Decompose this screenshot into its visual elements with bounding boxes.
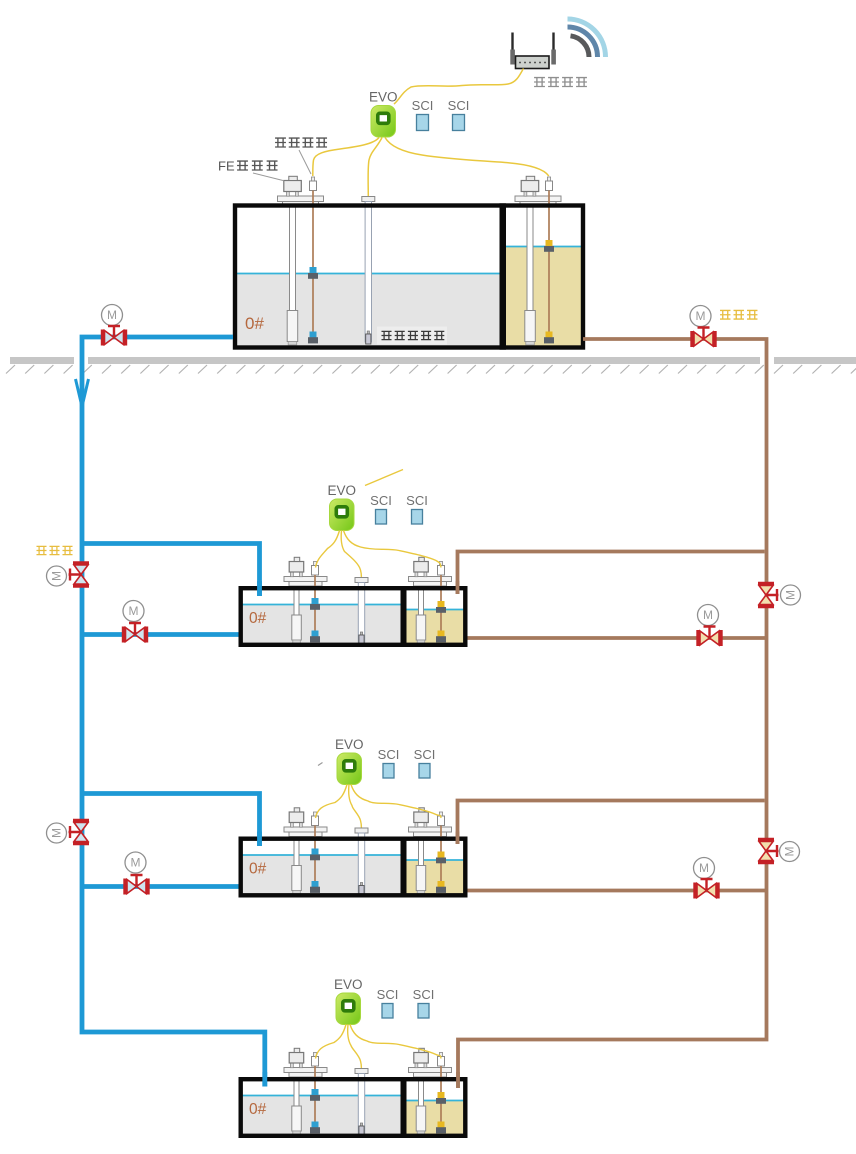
svg-text:SCI: SCI	[448, 98, 470, 113]
svg-text:M: M	[696, 309, 706, 323]
svg-text:M: M	[784, 590, 798, 600]
svg-text:SCI: SCI	[414, 747, 436, 762]
svg-text:SCI: SCI	[413, 987, 435, 1002]
svg-text:SCI: SCI	[370, 493, 392, 508]
svg-text:SCI: SCI	[412, 98, 434, 113]
svg-text:0#: 0#	[249, 610, 267, 627]
svg-text:M: M	[783, 847, 797, 857]
svg-text:M: M	[699, 861, 709, 875]
svg-text:M: M	[129, 604, 139, 618]
svg-text:EVO: EVO	[328, 483, 357, 498]
svg-text:M: M	[703, 608, 713, 622]
svg-text:M: M	[131, 856, 141, 870]
svg-text:EVO: EVO	[335, 737, 364, 752]
svg-text:M: M	[50, 828, 64, 838]
svg-text:0#: 0#	[245, 314, 264, 333]
svg-text:M: M	[50, 571, 64, 581]
svg-text:SCI: SCI	[406, 493, 428, 508]
svg-text:FE: FE	[218, 159, 235, 174]
svg-text:SCI: SCI	[378, 747, 400, 762]
svg-text:SCI: SCI	[377, 987, 399, 1002]
svg-text:0#: 0#	[249, 1101, 267, 1118]
svg-text:EVO: EVO	[334, 977, 363, 992]
svg-text:M: M	[107, 308, 117, 322]
svg-text:0#: 0#	[249, 861, 267, 878]
svg-text:EVO: EVO	[369, 90, 398, 105]
